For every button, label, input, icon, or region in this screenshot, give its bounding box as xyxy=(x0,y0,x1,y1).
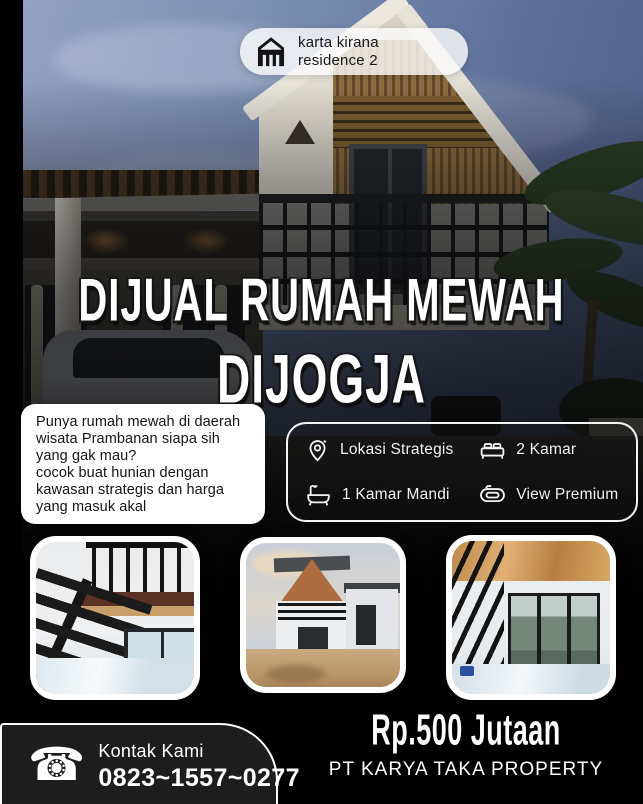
balcony-railing xyxy=(278,603,346,621)
feature-bedrooms: 2 Kamar xyxy=(478,435,626,464)
feature-label: Lokasi Strategis xyxy=(340,441,453,459)
feature-location: Lokasi Strategis xyxy=(304,435,478,464)
project-badge: karta kirana residence 2 xyxy=(240,28,468,75)
price-text: Rp.500 Jutaan xyxy=(300,706,632,776)
gallery-photo-interior-stairs xyxy=(30,536,200,700)
location-pin-icon xyxy=(304,436,331,463)
feature-bathrooms: 1 Kamar Mandi xyxy=(304,480,478,509)
view-premium-icon xyxy=(478,480,507,509)
mezzanine-railing xyxy=(92,542,194,594)
headline-line1: DIJUAL RUMAH MEWAH xyxy=(0,268,643,340)
contact-label: Kontak Kami xyxy=(98,741,300,762)
badge-text: karta kirana residence 2 xyxy=(298,34,379,70)
stair-railing xyxy=(452,541,504,671)
feature-label: 1 Kamar Mandi xyxy=(342,486,450,504)
feature-label: View Premium xyxy=(516,486,618,504)
headline: DIJUAL RUMAH MEWAH DIJOGJA xyxy=(0,268,643,392)
gallery-photo-interior-glass-door xyxy=(446,535,616,700)
badge-line2: residence 2 xyxy=(298,52,379,70)
bed-icon xyxy=(478,435,507,464)
real-estate-flyer: karta kirana residence 2 DIJUAL RUMAH ME… xyxy=(0,0,643,804)
feature-view: View Premium xyxy=(478,480,626,509)
bathtub-icon xyxy=(304,480,333,509)
window xyxy=(356,605,376,645)
description-text: Punya rumah mewah di daerah wisata Pramb… xyxy=(36,414,253,515)
description-card: Punya rumah mewah di daerah wisata Pramb… xyxy=(21,404,265,524)
features-panel: Lokasi Strategis 2 Kamar 1 Kamar Mandi xyxy=(286,422,638,522)
contact-text: Kontak Kami 0823~1557~0277 xyxy=(98,741,300,793)
gallery-photo-house-exterior xyxy=(240,537,406,693)
feature-label: 2 Kamar xyxy=(516,441,576,459)
contact-panel: ☎ Kontak Kami 0823~1557~0277 xyxy=(0,723,278,804)
courtyard xyxy=(246,649,400,687)
glossy-floor xyxy=(36,658,194,694)
house-logo-icon xyxy=(254,35,288,69)
phone-number: 0823~1557~0277 xyxy=(98,764,300,793)
phone-icon: ☎ xyxy=(28,741,85,787)
badge-line1: karta kirana xyxy=(298,34,379,52)
glossy-floor xyxy=(452,664,610,694)
price-block: Rp.500 Jutaan PT KARYA TAKA PROPERTY xyxy=(300,706,632,781)
